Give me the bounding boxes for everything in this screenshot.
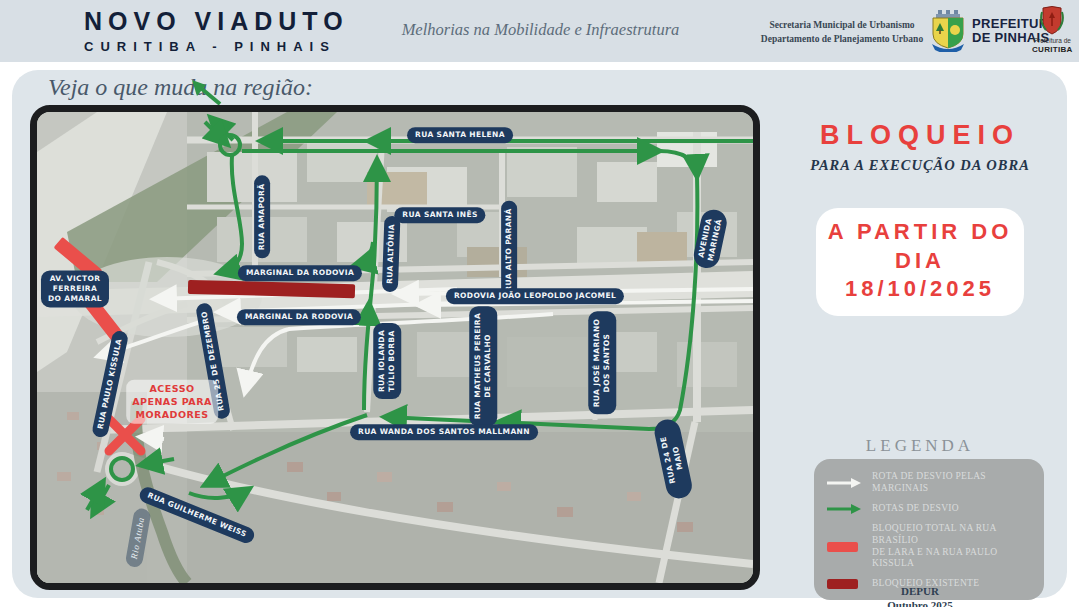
street-label-rodovia-joao-leopoldo-jacomel: RODOVIA JOÃO LEOPOLDO JACOMEL bbox=[446, 288, 624, 304]
start-date-line3: 18/10/2025 bbox=[816, 275, 1024, 304]
project-title: NOVO VIADUTO CURITIBA - PINHAIS bbox=[84, 7, 334, 54]
blockade-subheadline: PARA A EXECUÇÃO DA OBRA bbox=[770, 157, 1070, 174]
legend-title: LEGENDA bbox=[770, 436, 1070, 456]
start-date-line1: A PARTIR DO bbox=[816, 218, 1024, 247]
street-label-rua-amapora: RUA AMAPORÃ bbox=[254, 176, 270, 259]
legend-label: ROTAS DE DESVIO bbox=[872, 503, 959, 515]
curitiba-logo-label-top: Prefeitura de bbox=[1034, 37, 1071, 44]
credit-line1: DEPUR bbox=[770, 585, 1070, 599]
header-tagline: Melhorias na Mobilidade e Infraestrutura bbox=[368, 20, 713, 40]
street-label-rua-iolanda-tulio-borba: RUA IOLANDA TÚLIO BORBA bbox=[373, 323, 401, 399]
pinhais-crest-icon bbox=[930, 10, 966, 52]
project-title-line1: NOVO VIADUTO bbox=[84, 7, 334, 36]
curitiba-logo: Prefeitura de CURITIBA bbox=[1032, 6, 1073, 54]
header-bar: NOVO VIADUTO CURITIBA - PINHAIS Melhoria… bbox=[0, 0, 1079, 62]
street-label-rua-santa-helena: RUA SANTA HELENA bbox=[407, 127, 513, 143]
info-column: BLOQUEIO PARA A EXECUÇÃO DA OBRA A PARTI… bbox=[770, 110, 1070, 605]
street-label-rua-altonia: RUA ALTÔNIA bbox=[382, 216, 400, 292]
credit-line2: Outubro 2025 bbox=[770, 599, 1070, 607]
start-date-line2: DIA bbox=[816, 247, 1024, 276]
legend-item-marginais: ROTA DE DESVIO PELAS MARGINAIS bbox=[826, 471, 1032, 495]
street-label-marginal-da-rodovia-norte: MARGINAL DA RODOVIA bbox=[238, 265, 362, 281]
secretariat-line1: Secretaria Municipal de Urbanismo bbox=[752, 19, 932, 33]
map-canvas: RUA SANTA HELENA RUA AMAPORÃ RUA SANTA I… bbox=[30, 105, 760, 590]
curitiba-crest-icon bbox=[1039, 6, 1065, 36]
street-label-av-victor-ferreira-do-amaral: AV. VICTOR FERREIRA DO AMARAL bbox=[41, 270, 109, 307]
detour-exit-arrow-icon bbox=[186, 80, 226, 106]
credit-text: DEPUR Outubro 2025 bbox=[770, 585, 1070, 607]
red-bar-icon bbox=[826, 541, 862, 553]
blockade-headline: BLOQUEIO bbox=[770, 120, 1070, 151]
street-label-rua-jose-mariano-dos-santos: RUA JOSÉ MARIANO DOS SANTOS bbox=[588, 312, 616, 415]
street-label-rua-alto-parana: RUA ALTO PARANÁ bbox=[501, 200, 517, 299]
legend-item-bloqueio-total: BLOQUEIO TOTAL NA RUA BRASÍLIO DE LARA E… bbox=[826, 523, 1032, 571]
secretariat-text: Secretaria Municipal de Urbanismo Depart… bbox=[752, 19, 932, 47]
legend-label: ROTA DE DESVIO PELAS MARGINAIS bbox=[872, 471, 1032, 495]
street-label-rua-matheus-pereira-de-carvalho: RUA MATHEUS PEREIRA DE CARVALHO bbox=[469, 306, 497, 426]
street-label-rua-wanda-dos-santos-mallmann: RUA WANDA DOS SANTOS MALLMANN bbox=[350, 424, 538, 440]
residents-access-note: ACESSO APENAS PARA MORADORES bbox=[126, 380, 218, 424]
white-arrow-icon bbox=[826, 477, 862, 489]
curitiba-logo-label: Prefeitura de CURITIBA bbox=[1032, 37, 1073, 54]
intro-title: Veja o que muda na região: bbox=[48, 74, 313, 101]
project-title-line2: CURITIBA - PINHAIS bbox=[84, 39, 334, 54]
start-date-card: A PARTIR DO DIA 18/10/2025 bbox=[816, 208, 1024, 316]
legend-box: ROTA DE DESVIO PELAS MARGINAIS ROTAS DE … bbox=[814, 459, 1044, 600]
street-label-rua-santa-ines: RUA SANTA INÊS bbox=[394, 207, 485, 223]
secretariat-line2: Departamento de Planejamento Urbano bbox=[752, 33, 932, 47]
legend-label: BLOQUEIO TOTAL NA RUA BRASÍLIO DE LARA E… bbox=[872, 523, 1032, 571]
green-arrow-icon bbox=[826, 503, 862, 515]
curitiba-logo-label-bottom: CURITIBA bbox=[1032, 45, 1073, 54]
infographic-page: NOVO VIADUTO CURITIBA - PINHAIS Melhoria… bbox=[0, 0, 1079, 607]
legend-item-desvio: ROTAS DE DESVIO bbox=[826, 503, 1032, 515]
street-label-marginal-da-rodovia-sul: MARGINAL DA RODOVIA bbox=[237, 309, 361, 325]
